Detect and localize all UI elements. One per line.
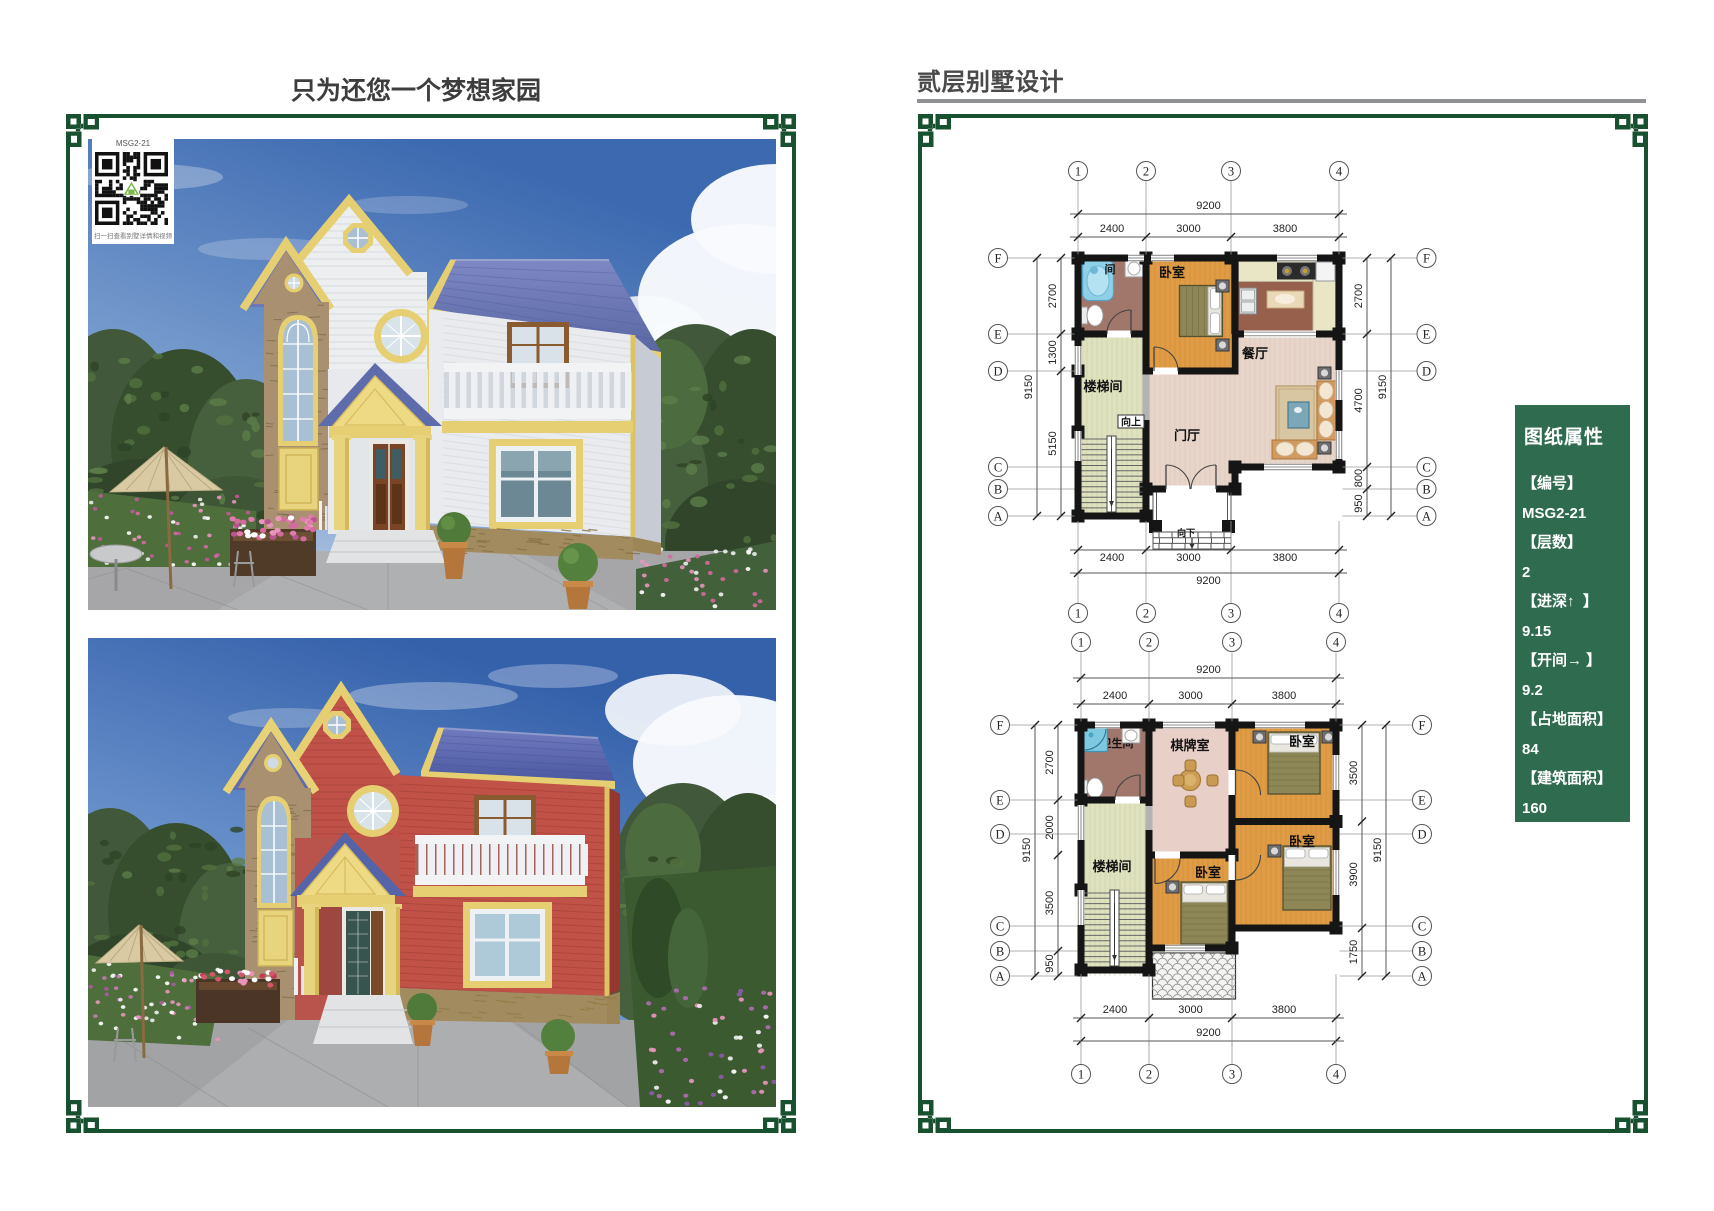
svg-text:3: 3: [1229, 1068, 1235, 1082]
svg-text:A: A: [1422, 510, 1431, 524]
svg-text:4700: 4700: [1353, 388, 1365, 412]
svg-text:2: 2: [1146, 636, 1152, 650]
svg-text:1300: 1300: [1047, 340, 1059, 364]
svg-text:3000: 3000: [1178, 1004, 1202, 1016]
svg-text:9150: 9150: [1021, 838, 1033, 862]
svg-text:9200: 9200: [1196, 575, 1220, 587]
svg-text:D: D: [995, 828, 1004, 842]
svg-text:1: 1: [1078, 1068, 1084, 1082]
svg-text:棋牌室: 棋牌室: [1169, 738, 1209, 753]
svg-text:2400: 2400: [1103, 1004, 1127, 1016]
svg-text:D: D: [1422, 365, 1431, 379]
svg-text:F: F: [1423, 252, 1430, 266]
svg-text:卧室: 卧室: [1289, 734, 1315, 749]
svg-text:C: C: [1422, 461, 1430, 475]
svg-text:B: B: [994, 483, 1002, 497]
svg-text:A: A: [995, 970, 1004, 984]
svg-text:3800: 3800: [1272, 1004, 1296, 1016]
svg-text:3800: 3800: [1273, 552, 1297, 564]
svg-text:E: E: [996, 794, 1004, 808]
svg-text:B: B: [996, 945, 1004, 959]
svg-text:3900: 3900: [1348, 862, 1360, 886]
svg-text:3: 3: [1228, 607, 1234, 621]
svg-text:1: 1: [1075, 607, 1081, 621]
svg-text:2: 2: [1146, 1068, 1152, 1082]
svg-text:B: B: [1418, 945, 1426, 959]
svg-text:2000: 2000: [1044, 815, 1056, 839]
svg-text:1750: 1750: [1348, 940, 1360, 964]
svg-text:2400: 2400: [1103, 690, 1127, 702]
svg-text:卧室: 卧室: [1159, 265, 1185, 280]
svg-text:3: 3: [1228, 165, 1234, 179]
svg-text:C: C: [1418, 920, 1426, 934]
svg-text:2: 2: [1143, 165, 1149, 179]
svg-text:C: C: [996, 920, 1004, 934]
svg-text:向下: 向下: [1177, 527, 1195, 538]
svg-text:9150: 9150: [1023, 375, 1035, 399]
svg-text:950: 950: [1044, 954, 1056, 972]
svg-text:卧室: 卧室: [1289, 834, 1315, 849]
svg-text:3000: 3000: [1176, 223, 1200, 235]
svg-text:9150: 9150: [1372, 838, 1384, 862]
svg-text:E: E: [994, 328, 1002, 342]
svg-text:1: 1: [1075, 165, 1081, 179]
svg-text:3800: 3800: [1272, 690, 1296, 702]
svg-text:F: F: [1419, 719, 1426, 733]
svg-text:E: E: [1423, 328, 1431, 342]
svg-text:楼梯间: 楼梯间: [1092, 859, 1131, 874]
svg-text:门厅: 门厅: [1174, 428, 1200, 443]
svg-text:4: 4: [1333, 1068, 1340, 1082]
svg-text:1: 1: [1078, 636, 1084, 650]
svg-text:A: A: [1417, 970, 1426, 984]
svg-text:2400: 2400: [1100, 552, 1124, 564]
svg-text:向上: 向上: [1121, 416, 1141, 429]
svg-text:9200: 9200: [1196, 664, 1220, 676]
svg-text:间: 间: [1105, 263, 1116, 276]
svg-text:3500: 3500: [1044, 891, 1056, 915]
svg-text:E: E: [1418, 794, 1426, 808]
svg-text:F: F: [995, 252, 1002, 266]
svg-text:B: B: [1422, 483, 1430, 497]
svg-text:2700: 2700: [1044, 750, 1056, 774]
svg-text:9200: 9200: [1196, 1027, 1220, 1039]
svg-text:D: D: [993, 365, 1002, 379]
svg-text:9200: 9200: [1196, 200, 1220, 212]
svg-text:950: 950: [1353, 494, 1365, 512]
svg-text:卧室: 卧室: [1195, 865, 1221, 880]
svg-text:3800: 3800: [1273, 223, 1297, 235]
svg-text:C: C: [994, 461, 1002, 475]
svg-text:9150: 9150: [1377, 375, 1389, 399]
svg-text:5150: 5150: [1047, 431, 1059, 455]
svg-text:2: 2: [1143, 607, 1149, 621]
svg-text:800: 800: [1353, 469, 1365, 487]
svg-text:3500: 3500: [1348, 761, 1360, 785]
svg-text:2400: 2400: [1100, 223, 1124, 235]
svg-text:3: 3: [1229, 636, 1235, 650]
svg-text:4: 4: [1333, 636, 1340, 650]
svg-text:2700: 2700: [1047, 284, 1059, 308]
svg-text:楼梯间: 楼梯间: [1083, 379, 1122, 394]
svg-text:餐厅: 餐厅: [1241, 346, 1268, 361]
svg-text:4: 4: [1336, 607, 1343, 621]
svg-text:4: 4: [1336, 165, 1343, 179]
svg-text:3000: 3000: [1178, 690, 1202, 702]
svg-text:D: D: [1417, 828, 1426, 842]
svg-text:2700: 2700: [1353, 284, 1365, 308]
svg-text:F: F: [997, 719, 1004, 733]
svg-text:A: A: [993, 510, 1002, 524]
svg-text:3000: 3000: [1176, 552, 1200, 564]
